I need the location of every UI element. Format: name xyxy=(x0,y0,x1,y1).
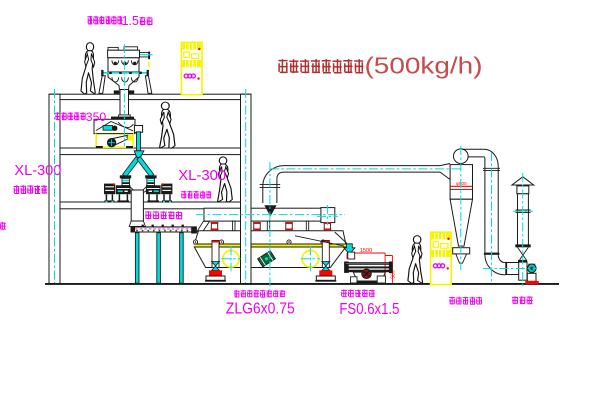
svg-text:1500: 1500 xyxy=(360,248,372,254)
svg-text:ZLG6x0.75: ZLG6x0.75 xyxy=(226,301,295,318)
svg-text:1.5: 1.5 xyxy=(122,14,139,28)
svg-text:350: 350 xyxy=(86,110,107,124)
svg-text:XL-300: XL-300 xyxy=(178,167,226,184)
svg-text:(500kg/h): (500kg/h) xyxy=(365,53,483,79)
svg-text:φ500: φ500 xyxy=(456,181,467,186)
svg-text:FS0.6x1.5: FS0.6x1.5 xyxy=(339,301,399,318)
